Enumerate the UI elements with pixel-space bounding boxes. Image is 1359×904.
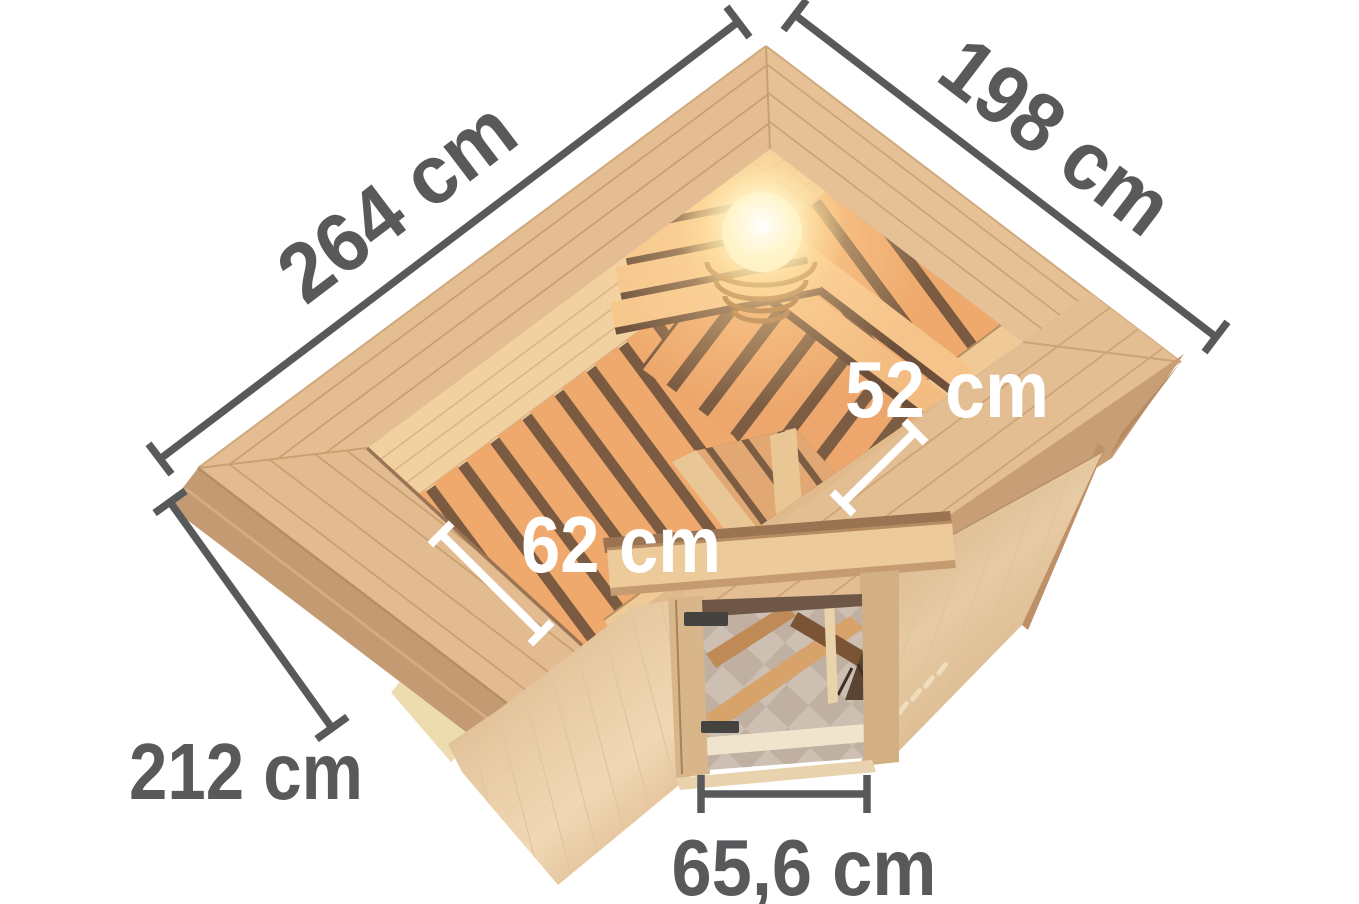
svg-text:212 cm: 212 cm bbox=[129, 727, 363, 816]
svg-text:65,6 cm: 65,6 cm bbox=[672, 823, 937, 904]
svg-text:52 cm: 52 cm bbox=[845, 345, 1049, 434]
svg-text:62 cm: 62 cm bbox=[521, 500, 721, 589]
